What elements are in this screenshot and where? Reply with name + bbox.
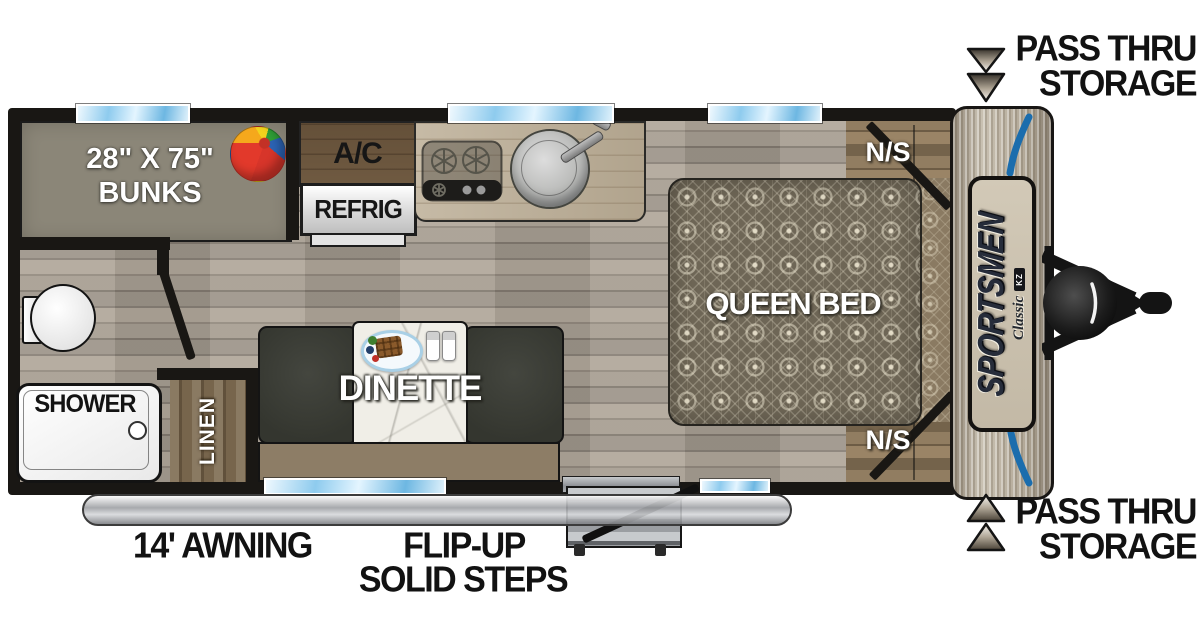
steps-foot-icon [574,544,585,556]
window-bunks [76,104,190,123]
pass-thru-bottom-line1: PASS THRU [1016,495,1196,530]
window-bed-bottom [700,479,770,493]
pass-thru-arrow-up-icon [965,493,1007,553]
nightstand-top-label: N/S [850,137,926,168]
linen-label: LINEN [196,397,220,465]
blueberry-icon [366,346,374,354]
refrig-label: REFRIG [315,194,403,225]
refrigerator-base [310,233,406,247]
awning-bar [82,494,792,526]
rv-floorplan: 28" X 75" BUNKS SHOWER LINEN A/C REFRIG [0,0,1200,636]
linen-closet: LINEN [170,380,246,482]
window-bed-top [708,104,822,123]
brand-sub: Classic KZ [1011,268,1028,340]
ac-unit: A/C [299,121,416,187]
stove-icon [421,140,503,202]
steps-label-line2: SOLID STEPS [330,560,596,601]
brand-maker-logo: KZ [1014,268,1025,291]
nightstand-bottom-label: N/S [850,425,926,456]
garnish-icon [368,336,377,345]
pass-thru-top-line1: PASS THRU [1016,32,1196,67]
bunks-size-text: 28" X 75" [30,142,270,176]
pass-thru-arrow-down-icon [965,47,1007,105]
wall-bath-top [8,237,170,250]
brand-badge: SPORTSMEN Classic KZ [968,176,1036,432]
wall-bath-door-jamb [157,237,169,275]
wall-linen-right [246,378,258,482]
brand-badge-inner: SPORTSMEN Classic KZ [972,180,1032,428]
ac-label: A/C [333,137,382,171]
shower-drain-icon [128,421,147,440]
bunks-label: 28" X 75" BUNKS [30,142,270,210]
propane-tank-icon [1043,266,1117,340]
brand-series-label: Classic [1011,296,1028,340]
food-icon [375,335,404,358]
toilet-icon [30,284,96,352]
pass-thru-top-line2: STORAGE [1016,67,1196,102]
shower-label: SHOWER [25,390,145,419]
pepper-shaker-icon [442,331,456,361]
salt-shaker-icon [426,331,440,361]
wall-linen-top [157,368,258,380]
queen-bed-label: QUEEN BED [668,286,918,322]
pass-thru-storage-bottom-label: PASS THRU STORAGE [1016,495,1196,564]
steps-foot-icon [655,544,666,556]
pass-thru-bottom-line2: STORAGE [1016,530,1196,565]
window-kitchen [448,104,614,123]
awning-label: 14' AWNING [133,526,312,567]
pass-thru-storage-top-label: PASS THRU STORAGE [1016,32,1196,101]
dinette-base-trim [258,442,560,482]
window-dinette [264,478,446,495]
tomato-icon [372,355,379,362]
dinette-label: DINETTE [295,369,525,409]
refrigerator: REFRIG [300,183,417,236]
hitch-icon [1042,240,1177,366]
bunks-text: BUNKS [30,176,270,210]
wall-bunks-right [286,121,299,240]
brand-model-label: SPORTSMEN [972,210,1013,398]
